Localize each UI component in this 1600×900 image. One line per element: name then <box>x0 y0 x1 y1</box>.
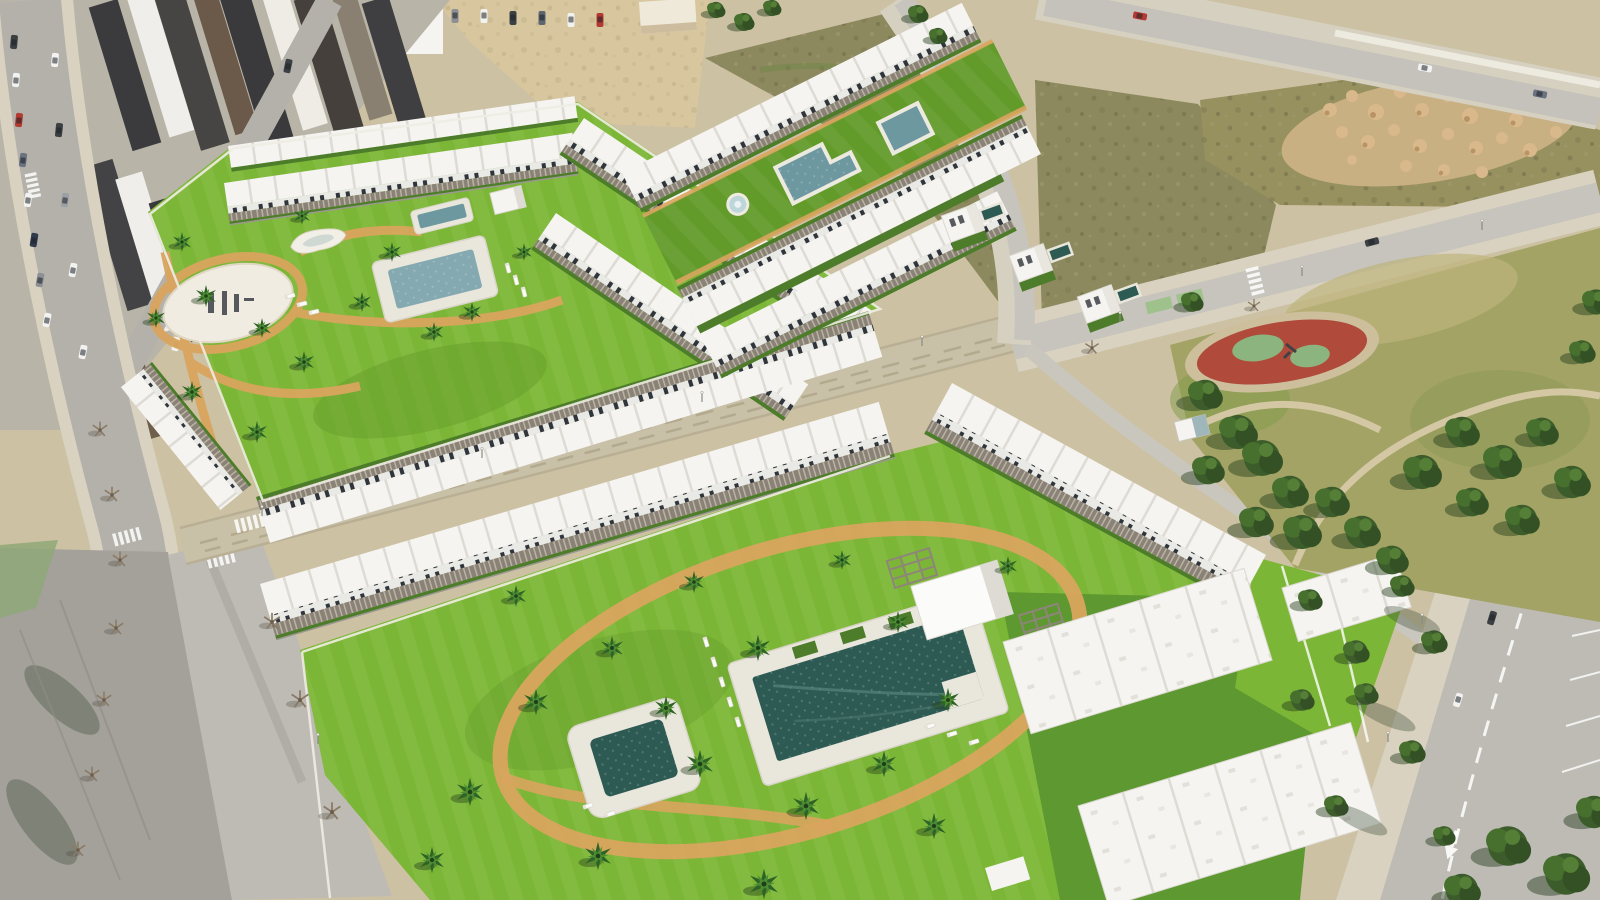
beige-building <box>639 0 697 34</box>
scene-canvas: Aerial render of coastal residential dev… <box>0 0 1600 900</box>
aerial-render: Aerial render of coastal residential dev… <box>0 0 1600 900</box>
